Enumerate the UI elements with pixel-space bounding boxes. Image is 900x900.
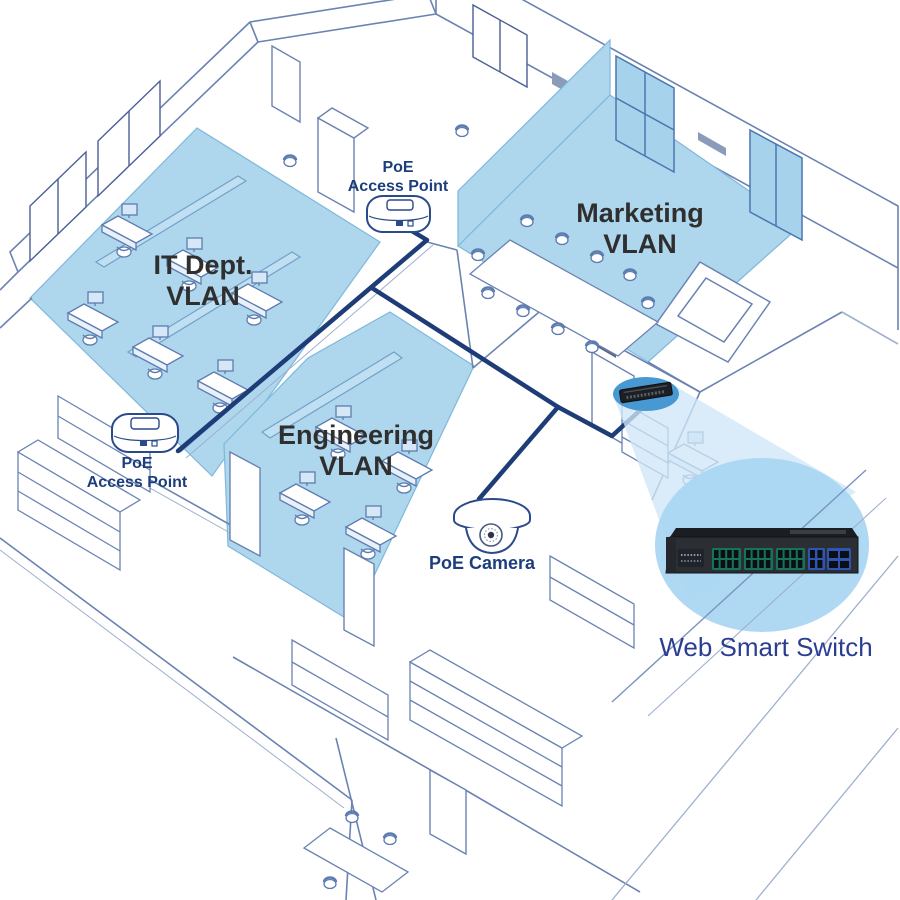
switch-callout	[612, 377, 886, 716]
poe-camera-label: PoE Camera	[401, 553, 563, 573]
ap-left-label: PoE Access Point	[62, 454, 212, 492]
poe-camera-device	[454, 499, 530, 553]
ap-top-label: PoE Access Point	[327, 158, 469, 196]
marketing-vlan-label: Marketing VLAN	[540, 198, 740, 260]
diagram-stage: PoE Access Point Marketing VLAN IT Dept.…	[0, 0, 900, 900]
web-smart-switch-render	[666, 528, 858, 573]
it-vlan-label: IT Dept. VLAN	[108, 250, 298, 312]
poe-access-point-top	[367, 196, 430, 232]
engineering-vlan-label: Engineering VLAN	[256, 420, 456, 482]
cable-to-camera	[479, 407, 558, 499]
poe-access-point-left	[112, 414, 178, 452]
web-smart-switch-label: Web Smart Switch	[638, 632, 894, 662]
